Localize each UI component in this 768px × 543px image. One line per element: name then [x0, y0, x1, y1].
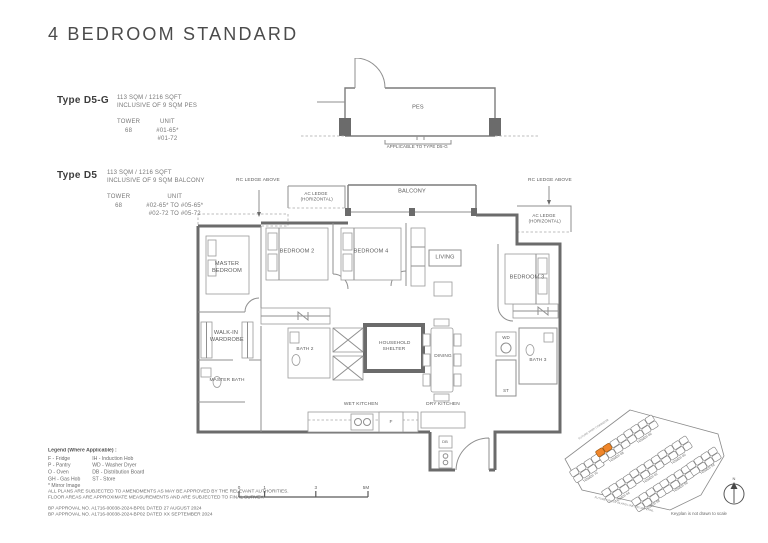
legend-item: WD - Washer Dryer	[92, 463, 144, 470]
legend-column-1: F - Fridge P - Pantry O - Oven GH - Gas …	[48, 456, 80, 490]
type-name: Type D5-G	[57, 95, 109, 144]
living-furniture	[411, 228, 461, 296]
washer-dryer	[496, 332, 516, 356]
bed-bedroom4	[341, 228, 401, 280]
pes-terrace	[301, 58, 539, 144]
legend-heading: Legend (Where Applicable) :	[48, 448, 144, 453]
tower-number: 68	[115, 203, 122, 211]
legend-item: IH - Induction Hob	[92, 456, 144, 463]
tower-header: TOWER	[117, 119, 140, 127]
dining-table	[423, 319, 461, 401]
tower-cluster-66: TOWER 66	[623, 415, 658, 445]
legend-item: ST - Store	[92, 476, 144, 483]
tower-cluster-54: TOWER 54	[686, 447, 721, 477]
door-arc	[355, 58, 385, 88]
unit-header: UNIT	[160, 119, 175, 127]
bed-master	[206, 236, 249, 294]
keyplan-note: Keyplan is not drawn to scale	[671, 511, 728, 516]
bath3-room	[519, 328, 557, 384]
legend-item: DB - Distribution Board	[92, 469, 144, 476]
tower-cluster-62: TOWER 62	[629, 455, 664, 485]
scale-tick: 3	[315, 485, 318, 490]
type-specs: 113 SQM / 1216 SQFT INCLUSIVE OF 9 SQM B…	[107, 170, 205, 219]
fridge-box	[379, 412, 403, 432]
legend: Legend (Where Applicable) : F - Fridge P…	[48, 448, 144, 490]
masterbath-fixtures	[201, 368, 221, 388]
scale-tick: 0	[238, 485, 241, 490]
legend-item: P - Pantry	[48, 463, 80, 470]
legend-item: F - Fridge	[48, 456, 80, 463]
page-title: 4 BEDROOM STANDARD	[48, 24, 298, 45]
brochure-page: { "title": "4 BEDROOM STANDARD", "types"…	[0, 0, 768, 543]
type-area: 113 SQM / 1216 SQFT	[107, 170, 205, 178]
tower-cluster-60: TOWER 60	[657, 436, 692, 466]
keyplan: TOWER 70 TOWER 68 TOWER 66 TOWER 64 TOWE…	[556, 398, 766, 538]
compass-icon: N	[724, 476, 744, 504]
door-arc	[498, 306, 513, 321]
tower-unit-table: TOWER 68 UNIT #01-65* #01-72	[117, 119, 197, 144]
unit-header: UNIT	[167, 194, 182, 202]
walkin-closets	[201, 322, 253, 358]
unit-range: #01-72	[157, 136, 177, 144]
unit-range: #01-65*	[156, 128, 178, 136]
tower-number: 68	[125, 128, 132, 136]
type-specs: 113 SQM / 1216 SQFT INCLUSIVE OF 9 SQM P…	[117, 95, 197, 144]
type-d5-info: Type D5 113 SQM / 1216 SQFT INCLUSIVE OF…	[57, 170, 205, 219]
arrow-down-icon	[257, 212, 261, 217]
floorplan-drawing	[193, 58, 595, 480]
household-shelter-room	[365, 325, 423, 371]
wardrobe-sliding-icon	[298, 307, 548, 320]
store-room	[496, 360, 516, 396]
legend-item: O - Oven	[48, 469, 80, 476]
type-inclusive: INCLUSIVE OF 9 SQM BALCONY	[107, 178, 205, 186]
type-name: Type D5	[57, 170, 99, 219]
compass-n-label: N	[733, 476, 736, 481]
bp-approval-line: BP APPROVAL NO. A1716-00038-2024-BP02 DA…	[48, 512, 289, 518]
applicability-bracket	[385, 136, 451, 144]
scale-tick: 5M	[363, 485, 370, 490]
entrance-door	[456, 438, 489, 470]
type-area: 113 SQM / 1216 SQFT	[117, 95, 197, 103]
door-arc	[245, 298, 259, 312]
bed-bedroom2	[266, 228, 328, 280]
type-d5g-info: Type D5-G 113 SQM / 1216 SQFT INCLUSIVE …	[57, 95, 197, 144]
scale-bar: 0 1 3 5M	[237, 483, 372, 503]
bed-bedroom3	[505, 254, 549, 304]
type-inclusive: INCLUSIVE OF 9 SQM PES	[117, 103, 197, 111]
dry-kitchen-counter	[421, 412, 465, 428]
tower-unit-table: TOWER 68 UNIT #02-65* TO #05-65* #02-72 …	[107, 194, 205, 219]
wet-kitchen-counter	[308, 412, 418, 432]
legend-item: GH - Gas Hob	[48, 476, 80, 483]
db-and-sink	[439, 436, 452, 468]
scale-tick: 1	[263, 485, 266, 490]
legend-column-2: IH - Induction Hob WD - Washer Dryer DB …	[92, 456, 144, 490]
service-shafts	[333, 328, 363, 380]
tower-header: TOWER	[107, 194, 130, 202]
arrow-down-icon	[547, 200, 551, 205]
floorplan: PES APPLICABLE TO TYPE D5-G BALCONY RC L…	[193, 58, 595, 480]
